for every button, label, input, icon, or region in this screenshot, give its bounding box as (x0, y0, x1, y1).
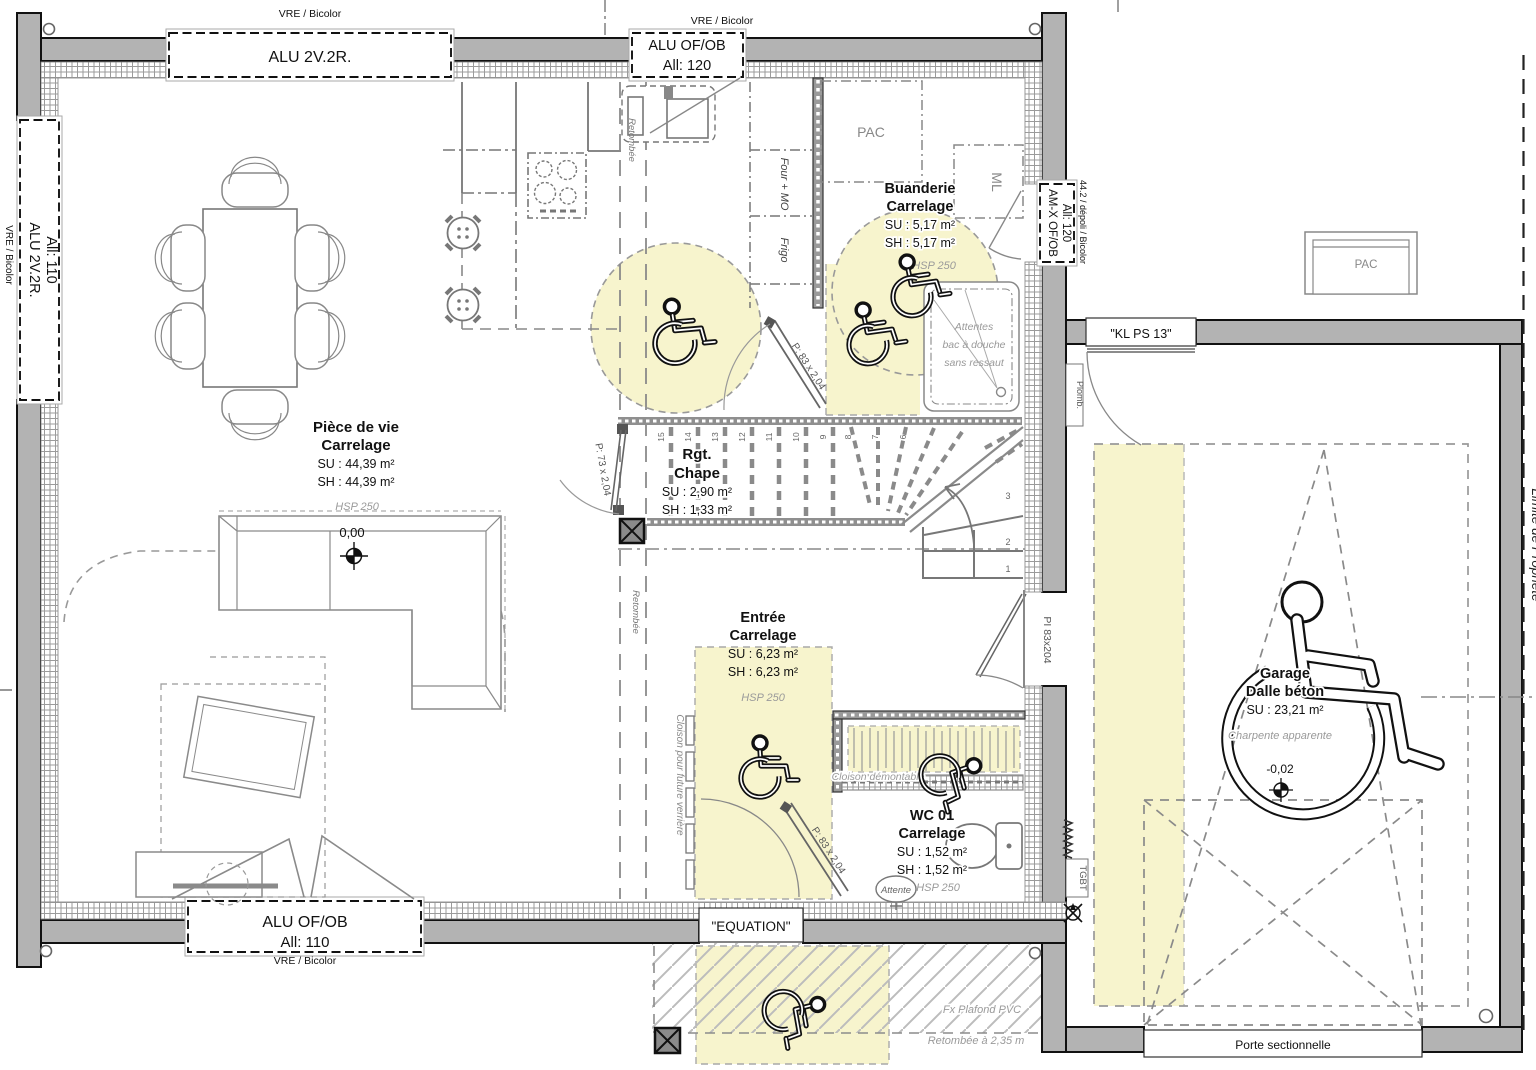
svg-text:All: 120: All: 120 (663, 58, 711, 74)
svg-text:PI 83x204: PI 83x204 (1041, 616, 1053, 663)
svg-text:2: 2 (1005, 537, 1010, 547)
svg-text:9: 9 (818, 434, 828, 439)
svg-text:sans ressaut: sans ressaut (944, 357, 1005, 369)
svg-text:Dalle béton: Dalle béton (1246, 684, 1324, 700)
svg-text:Garage: Garage (1260, 666, 1310, 682)
svg-text:Charpente apparente: Charpente apparente (1228, 730, 1332, 742)
svg-text:Carrelage: Carrelage (321, 437, 390, 454)
svg-text:HSP 250: HSP 250 (916, 882, 961, 894)
svg-text:Pièce de vie: Pièce de vie (313, 419, 399, 436)
svg-text:Four + MO: Four + MO (778, 158, 790, 211)
svg-text:SH : 1,33 m²: SH : 1,33 m² (662, 503, 732, 517)
svg-text:13: 13 (710, 432, 720, 442)
svg-text:7: 7 (870, 434, 880, 439)
svg-text:ALU 2V.2R.: ALU 2V.2R. (26, 222, 42, 297)
svg-text:6: 6 (898, 434, 908, 439)
svg-text:SH : 44,39 m²: SH : 44,39 m² (317, 475, 394, 489)
svg-text:All: 110: All: 110 (43, 236, 59, 283)
svg-text:Carrelage: Carrelage (730, 628, 797, 644)
svg-text:SU : 5,17 m²: SU : 5,17 m² (885, 218, 955, 232)
svg-text:Chape: Chape (674, 465, 720, 482)
svg-text:14: 14 (683, 432, 693, 442)
svg-text:TGBT: TGBT (1077, 865, 1088, 891)
svg-text:Retombée: Retombée (626, 118, 637, 162)
svg-text:11: 11 (764, 432, 774, 441)
svg-text:Carrelage: Carrelage (899, 826, 966, 842)
svg-text:SU : 6,23 m²: SU : 6,23 m² (728, 647, 798, 661)
svg-text:SU : 44,39 m²: SU : 44,39 m² (317, 457, 394, 471)
svg-text:Retombée: Retombée (630, 590, 641, 634)
svg-text:"KL PS 13": "KL PS 13" (1110, 327, 1171, 341)
svg-text:SU : 2,90 m²: SU : 2,90 m² (662, 485, 732, 499)
svg-text:PAC: PAC (857, 124, 885, 140)
svg-text:Limite de Propriété: Limite de Propriété (1529, 488, 1536, 601)
svg-text:0,00: 0,00 (339, 525, 364, 540)
svg-text:All: 120: All: 120 (1060, 204, 1072, 242)
svg-text:bac à douche: bac à douche (942, 339, 1005, 351)
svg-text:1: 1 (1005, 564, 1010, 574)
svg-text:Cloison démontable: Cloison démontable (832, 771, 925, 783)
svg-text:12: 12 (737, 432, 747, 442)
svg-text:Entrée: Entrée (740, 610, 785, 626)
svg-text:3: 3 (1005, 491, 1010, 501)
svg-text:Attentes: Attentes (954, 321, 994, 333)
svg-text:VRE / Bicolor: VRE / Bicolor (3, 225, 14, 285)
svg-text:8: 8 (843, 434, 853, 439)
svg-text:ALU OF/OB: ALU OF/OB (648, 38, 725, 54)
svg-text:VRE / Bicolor: VRE / Bicolor (279, 8, 342, 20)
svg-text:VRE / Bicolor: VRE / Bicolor (691, 15, 754, 27)
svg-text:Plomb.: Plomb. (1075, 381, 1085, 409)
svg-text:Carrelage: Carrelage (887, 199, 954, 215)
svg-text:Cloison pour future verrière: Cloison pour future verrière (674, 714, 685, 836)
svg-text:All: 110: All: 110 (281, 934, 330, 951)
svg-text:Porte sectionnelle: Porte sectionnelle (1235, 1038, 1331, 1052)
svg-text:SH : 6,23 m²: SH : 6,23 m² (728, 665, 798, 679)
svg-text:Fx Plafond PVC: Fx Plafond PVC (943, 1004, 1021, 1016)
svg-text:ML: ML (989, 172, 1005, 192)
svg-text:SU : 1,52 m²: SU : 1,52 m² (897, 845, 967, 859)
svg-text:PAC: PAC (1355, 259, 1378, 271)
svg-text:HSP 250: HSP 250 (912, 260, 957, 272)
svg-text:AM-X OF/OB: AM-X OF/OB (1046, 189, 1058, 257)
svg-text:10: 10 (791, 432, 801, 442)
svg-text:ALU 2V.2R.: ALU 2V.2R. (268, 49, 351, 66)
svg-text:44.2 / dépoli / Bicolor: 44.2 / dépoli / Bicolor (1078, 180, 1088, 264)
svg-text:VRE / Bicolor: VRE / Bicolor (274, 955, 337, 967)
svg-text:Retombée à 2,35 m: Retombée à 2,35 m (928, 1035, 1025, 1047)
svg-text:Frigo: Frigo (778, 237, 790, 262)
svg-text:SH : 1,52 m²: SH : 1,52 m² (897, 863, 967, 877)
svg-text:Attente: Attente (880, 885, 911, 896)
svg-text:Buanderie: Buanderie (885, 181, 956, 197)
svg-text:SH : 5,17 m²: SH : 5,17 m² (885, 236, 955, 250)
svg-text:ALU OF/OB: ALU OF/OB (262, 914, 347, 931)
svg-text:15: 15 (656, 432, 666, 442)
svg-text:HSP 250: HSP 250 (741, 692, 786, 704)
svg-text:SU : 23,21 m²: SU : 23,21 m² (1246, 703, 1323, 717)
svg-text:-0,02: -0,02 (1266, 762, 1294, 776)
svg-text:"EQUATION": "EQUATION" (711, 919, 790, 934)
svg-text:Rgt.: Rgt. (682, 446, 711, 463)
